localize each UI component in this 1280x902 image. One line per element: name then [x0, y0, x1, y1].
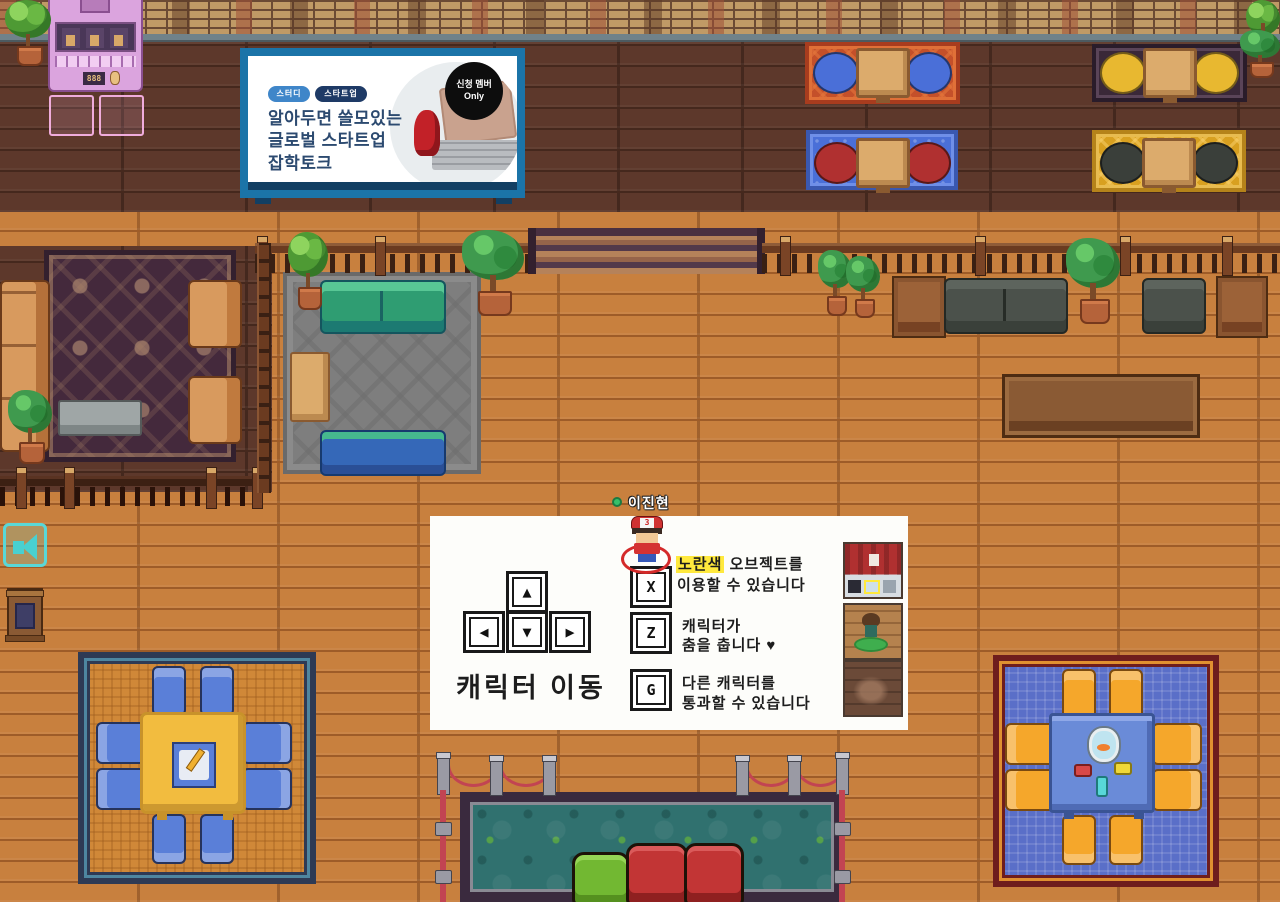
- rope-knob: [834, 870, 851, 884]
- tan-armchair: [188, 280, 242, 348]
- chair-blue[interactable]: [200, 666, 234, 716]
- thumb-machine-dark: [848, 580, 861, 593]
- cushion-red: [814, 142, 860, 184]
- cushion-dark: [1100, 142, 1146, 184]
- chair-blue[interactable]: [242, 768, 292, 810]
- megaphone-icon-horn: [22, 534, 37, 560]
- potted-plant: [8, 390, 52, 464]
- billboard-title: 알아두면 쓸모있는 글로벌 스타트업 잡학토크: [268, 108, 402, 175]
- vending-window: [55, 22, 136, 52]
- laptop-keyboard: [432, 140, 520, 170]
- fishbowl-icon: [1089, 728, 1119, 762]
- member-only-line1: 신청 멤버: [456, 79, 492, 91]
- tv-console: [58, 400, 142, 436]
- billboard-foot: [496, 198, 512, 204]
- key-down-icon: ▼: [506, 611, 548, 653]
- g-desc-line2: 통과할 수 있습니다: [682, 692, 811, 713]
- rope-barrier-vertical: [839, 790, 845, 902]
- rope-stanchion: [736, 758, 749, 796]
- brick-wall: [0, 0, 1280, 36]
- ghost-shadow: [853, 676, 889, 706]
- wall-ledge: [0, 34, 1280, 42]
- whiteboard-table[interactable]: [140, 712, 246, 814]
- chair-orange[interactable]: [1152, 723, 1202, 765]
- dark-armchair: [1142, 278, 1206, 334]
- podium-screen: [15, 603, 35, 629]
- potted-plant: [846, 256, 880, 318]
- low-table[interactable]: [856, 138, 910, 188]
- pink-mat: [49, 95, 94, 136]
- thumb-machine-gray: [883, 580, 896, 593]
- chair-orange[interactable]: [1109, 815, 1143, 865]
- yellow-highlight: 노란색: [676, 556, 724, 573]
- x-desc-line1: 노란색 오브젝트를: [676, 553, 804, 574]
- rope-stanchion: [788, 758, 801, 796]
- rope-knob: [834, 822, 851, 836]
- vending-coin-slot: [110, 71, 120, 85]
- potted-monstera: [462, 230, 524, 316]
- chair-orange[interactable]: [1062, 815, 1096, 865]
- dance-spotlight: [854, 637, 888, 652]
- rope-barrier-vertical: [440, 790, 446, 902]
- member-only-circle: 신청 멤버 Only: [445, 62, 503, 120]
- member-only-line2: Only: [464, 91, 484, 103]
- z-desc-line2: 춤을 춥니다 ♥: [682, 634, 776, 655]
- red-figurine: [414, 110, 440, 156]
- chair-blue[interactable]: [242, 722, 292, 764]
- controls-guide-panel: ▲ ◀ ▼ ▶ 캐릭터 이동 X 노란색 오브젝트를 이용할 수 있습니다 Z …: [430, 516, 908, 730]
- fishbowl-table[interactable]: [1049, 713, 1155, 813]
- chair-blue[interactable]: [96, 722, 146, 764]
- yellow-item: [1114, 762, 1132, 775]
- blue-couch: [320, 430, 446, 476]
- rope-knob: [435, 822, 452, 836]
- chair-blue[interactable]: [152, 814, 186, 864]
- tatami-set-gold: [1092, 130, 1246, 192]
- rope-knob: [435, 870, 452, 884]
- low-table[interactable]: [1143, 48, 1197, 98]
- player-status-dot: [612, 497, 622, 507]
- rope-stanchion: [543, 758, 556, 796]
- cyan-item: [1096, 776, 1108, 797]
- billboard-base-strip: [248, 182, 517, 190]
- potted-monstera: [1066, 238, 1120, 324]
- cushion-yellow: [1100, 52, 1146, 94]
- platform-steps: [528, 228, 765, 274]
- avatar-shirt: [634, 543, 660, 554]
- x-desc-line2: 이용할 수 있습니다: [677, 574, 806, 595]
- chair-orange[interactable]: [1062, 669, 1096, 719]
- pink-mat: [99, 95, 144, 136]
- cushion-blue: [813, 52, 859, 94]
- thumb-machine-highlighted: [864, 580, 880, 594]
- vending-price-display: 888: [83, 72, 105, 85]
- rope-stanchion: [490, 758, 503, 796]
- chair-blue[interactable]: [152, 666, 186, 716]
- avatar-face: [636, 533, 658, 543]
- tan-side-table: [290, 352, 330, 422]
- chair-blue[interactable]: [200, 814, 234, 864]
- avatar-cap-panel: 3: [640, 518, 654, 528]
- rope-stanchion: [437, 755, 450, 795]
- thumbnail-dance: [843, 603, 903, 660]
- low-table[interactable]: [856, 48, 910, 98]
- beanbag-red[interactable]: [684, 843, 744, 902]
- chair-orange[interactable]: [1005, 723, 1055, 765]
- potted-plant: [1240, 30, 1280, 78]
- player-avatar: 3: [628, 516, 666, 562]
- vending-machine[interactable]: 888: [48, 0, 143, 92]
- vending-sparkle-band: [55, 56, 136, 67]
- key-right-icon: ▶: [549, 611, 591, 653]
- dark-couch: [944, 278, 1068, 334]
- key-left-icon: ◀: [463, 611, 505, 653]
- chair-blue[interactable]: [96, 768, 146, 810]
- meeting-area-orange: [78, 652, 316, 884]
- event-billboard[interactable]: 신청 멤버 Only 스터디 스타트업 알아두면 쓸모있는 글로벌 스타트업 잡…: [240, 48, 525, 198]
- beanbag-red[interactable]: [626, 843, 688, 902]
- meeting-area-blue: [993, 655, 1219, 887]
- low-table[interactable]: [1142, 138, 1196, 188]
- thumbnail-pass-through: [843, 660, 903, 717]
- potted-tree: [288, 232, 328, 310]
- chair-orange[interactable]: [1005, 769, 1055, 811]
- railing-lower: [0, 476, 268, 506]
- z-desc-line1: 캐릭터가: [682, 615, 741, 636]
- cushion-blue: [906, 52, 952, 94]
- cushion-dark: [1192, 142, 1238, 184]
- potted-tree: [5, 0, 51, 66]
- chair-orange[interactable]: [1152, 769, 1202, 811]
- badge-startup: 스타트업: [315, 86, 367, 102]
- whiteboard-icon[interactable]: [172, 742, 216, 788]
- badge-study: 스터디: [268, 86, 310, 102]
- tatami-set-red: [805, 42, 960, 104]
- virtual-office-map: 888 신청 멤버 Only 스터디 스타트업 알아두면 쓸모있는 글로벌 스타…: [0, 0, 1280, 902]
- move-label: 캐릭터 이동: [446, 666, 616, 705]
- announcement-zone[interactable]: [3, 523, 47, 567]
- chair-orange[interactable]: [1109, 669, 1143, 719]
- tatami-set-purple: [1092, 44, 1247, 102]
- key-z-icon: Z: [630, 612, 672, 654]
- fence-divider: [257, 243, 271, 493]
- wood-side-table: [1216, 276, 1268, 338]
- thumbnail-use-object: [843, 542, 903, 599]
- billboard-foot: [255, 198, 271, 204]
- g-desc-line1: 다른 캐릭터를: [682, 672, 776, 693]
- wood-side-table: [892, 276, 946, 338]
- rope-stanchion: [836, 755, 849, 795]
- player-nametag: 이진현: [628, 493, 670, 513]
- avatar-pants: [638, 554, 656, 562]
- long-wood-table: [1002, 374, 1200, 438]
- green-couch: [320, 280, 446, 334]
- red-item: [1074, 764, 1092, 777]
- key-g-icon: G: [630, 669, 672, 711]
- podium-sign[interactable]: [7, 588, 43, 642]
- tan-armchair: [188, 376, 242, 444]
- fish: [1097, 744, 1110, 751]
- tatami-set-blue: [806, 130, 958, 190]
- cushion-yellow: [1193, 52, 1239, 94]
- cushion-red: [905, 142, 951, 184]
- vending-top-tab: [80, 0, 110, 13]
- beanbag-green[interactable]: [572, 852, 630, 902]
- key-up-icon: ▲: [506, 571, 548, 613]
